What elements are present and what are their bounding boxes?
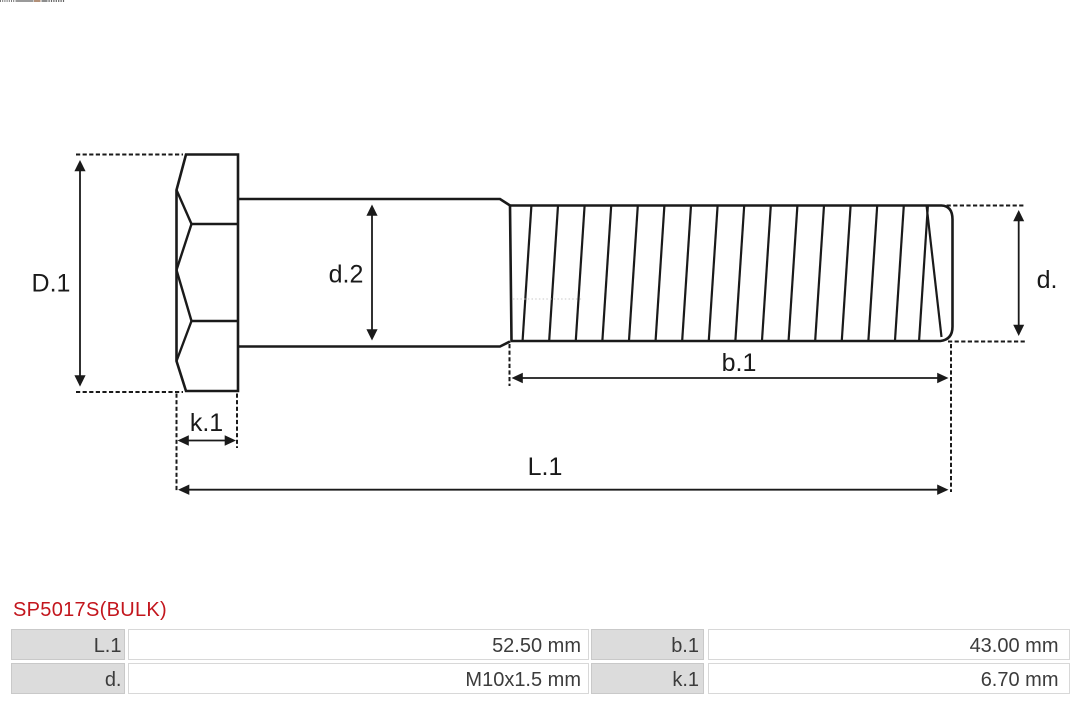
svg-text:d.: d. — [1037, 266, 1058, 294]
svg-text:b.1: b.1 — [722, 349, 757, 377]
svg-text:d.2: d.2 — [329, 261, 364, 289]
svg-text:D.1: D.1 — [32, 270, 71, 298]
svg-text:L.1: L.1 — [528, 453, 563, 481]
svg-text:k.1: k.1 — [190, 409, 223, 437]
